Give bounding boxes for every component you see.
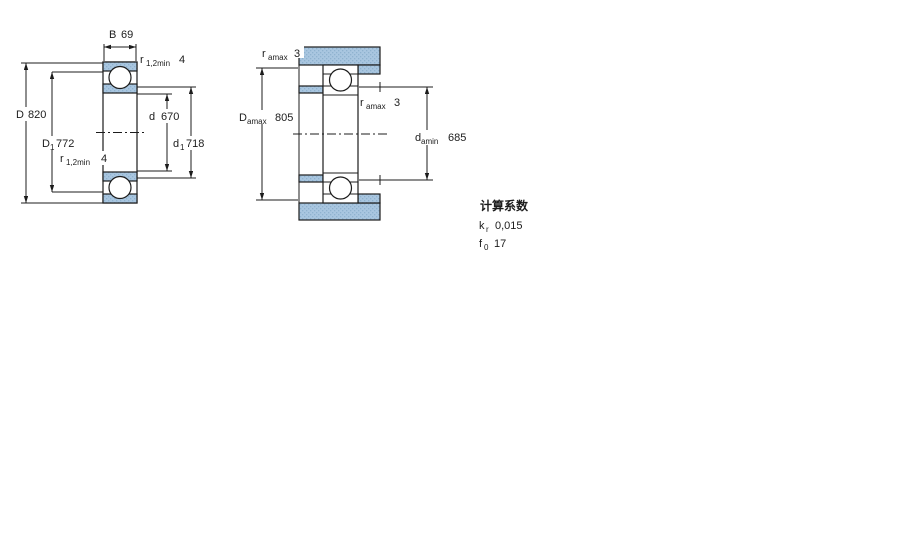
factor-kr: k r 0,015 — [479, 216, 523, 236]
housing-section-bottom — [299, 203, 380, 220]
shaft-shoulder-bottom — [299, 175, 323, 182]
mounting-dimensions-diagram: r amax 3 D amax 805 r amax 3 — [236, 44, 475, 220]
dimension-Da: D amax 805 — [236, 68, 298, 200]
ball-top — [330, 69, 352, 91]
ball-bottom — [109, 177, 131, 199]
bearing-drawing-page: B 69 r 1,2min 4 D 820 — [0, 0, 900, 560]
housing-section-top — [299, 47, 380, 65]
factor-f0: f 0 17 — [479, 234, 506, 254]
dimension-d1: d 1 718 — [137, 87, 215, 178]
housing-seat-bottom-right — [358, 194, 380, 203]
calculation-factors: 计算系数 k r 0,015 f 0 17 — [479, 198, 529, 254]
dimension-B: B 69 — [104, 25, 136, 61]
dimension-label-B: B 69 — [109, 25, 133, 42]
dimension-label-ra-mid: r amax 3 — [360, 93, 400, 113]
dimension-label-r-top: r 1,2min 4 — [140, 50, 185, 70]
dimension-ra-mid: r amax 3 — [360, 93, 400, 113]
bearing-technical-drawing: B 69 r 1,2min 4 D 820 — [0, 0, 900, 560]
shaft-shoulder-top — [299, 86, 323, 93]
housing-seat-top-right — [358, 65, 380, 74]
dimension-ra-top: r amax 3 — [262, 44, 304, 64]
calculation-factors-title: 计算系数 — [480, 198, 529, 213]
dimension-D1: D 1 772 — [40, 72, 103, 192]
dimension-r-top: r 1,2min 4 — [140, 50, 185, 70]
ball-bottom — [330, 177, 352, 199]
dimension-da: d amin 685 — [359, 82, 475, 185]
ball-top — [109, 67, 131, 89]
dimension-D: D 820 — [14, 63, 103, 203]
bearing-cross-section-diagram: B 69 r 1,2min 4 D 820 — [14, 25, 215, 203]
dimension-d: d 670 — [137, 94, 184, 171]
